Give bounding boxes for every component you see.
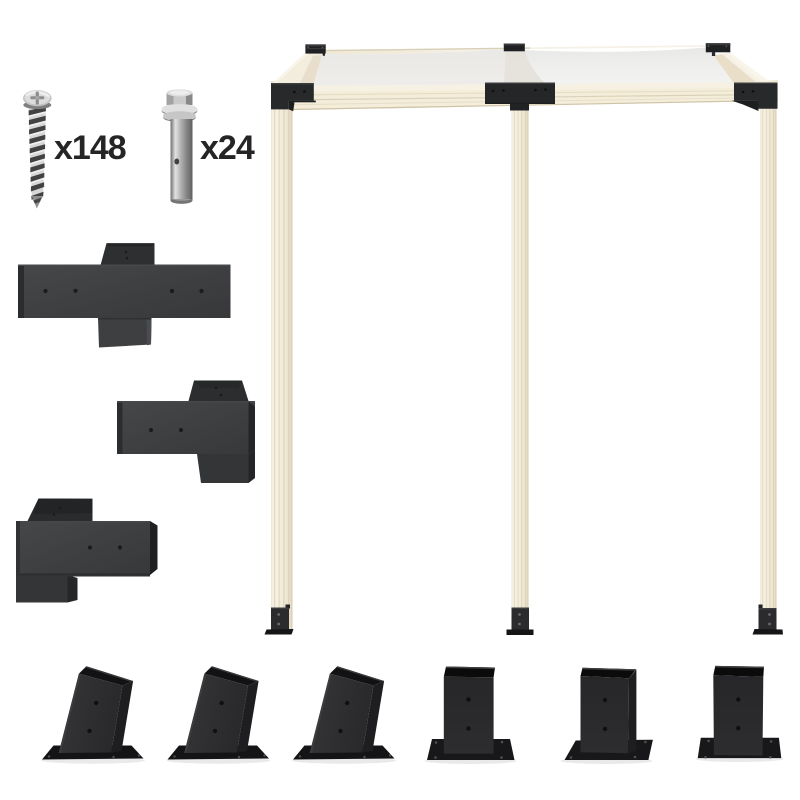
svg-text:x148: x148 [54, 129, 126, 167]
svg-text:x24: x24 [200, 129, 255, 167]
